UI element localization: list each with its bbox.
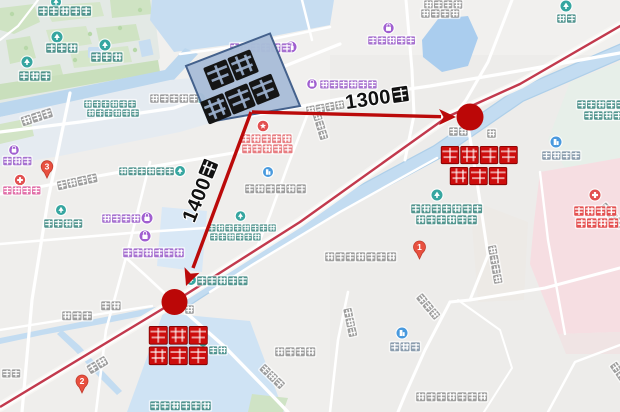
svg-text:3: 3 (45, 162, 50, 172)
svg-text:2: 2 (80, 376, 85, 386)
svg-text:1: 1 (417, 242, 422, 252)
